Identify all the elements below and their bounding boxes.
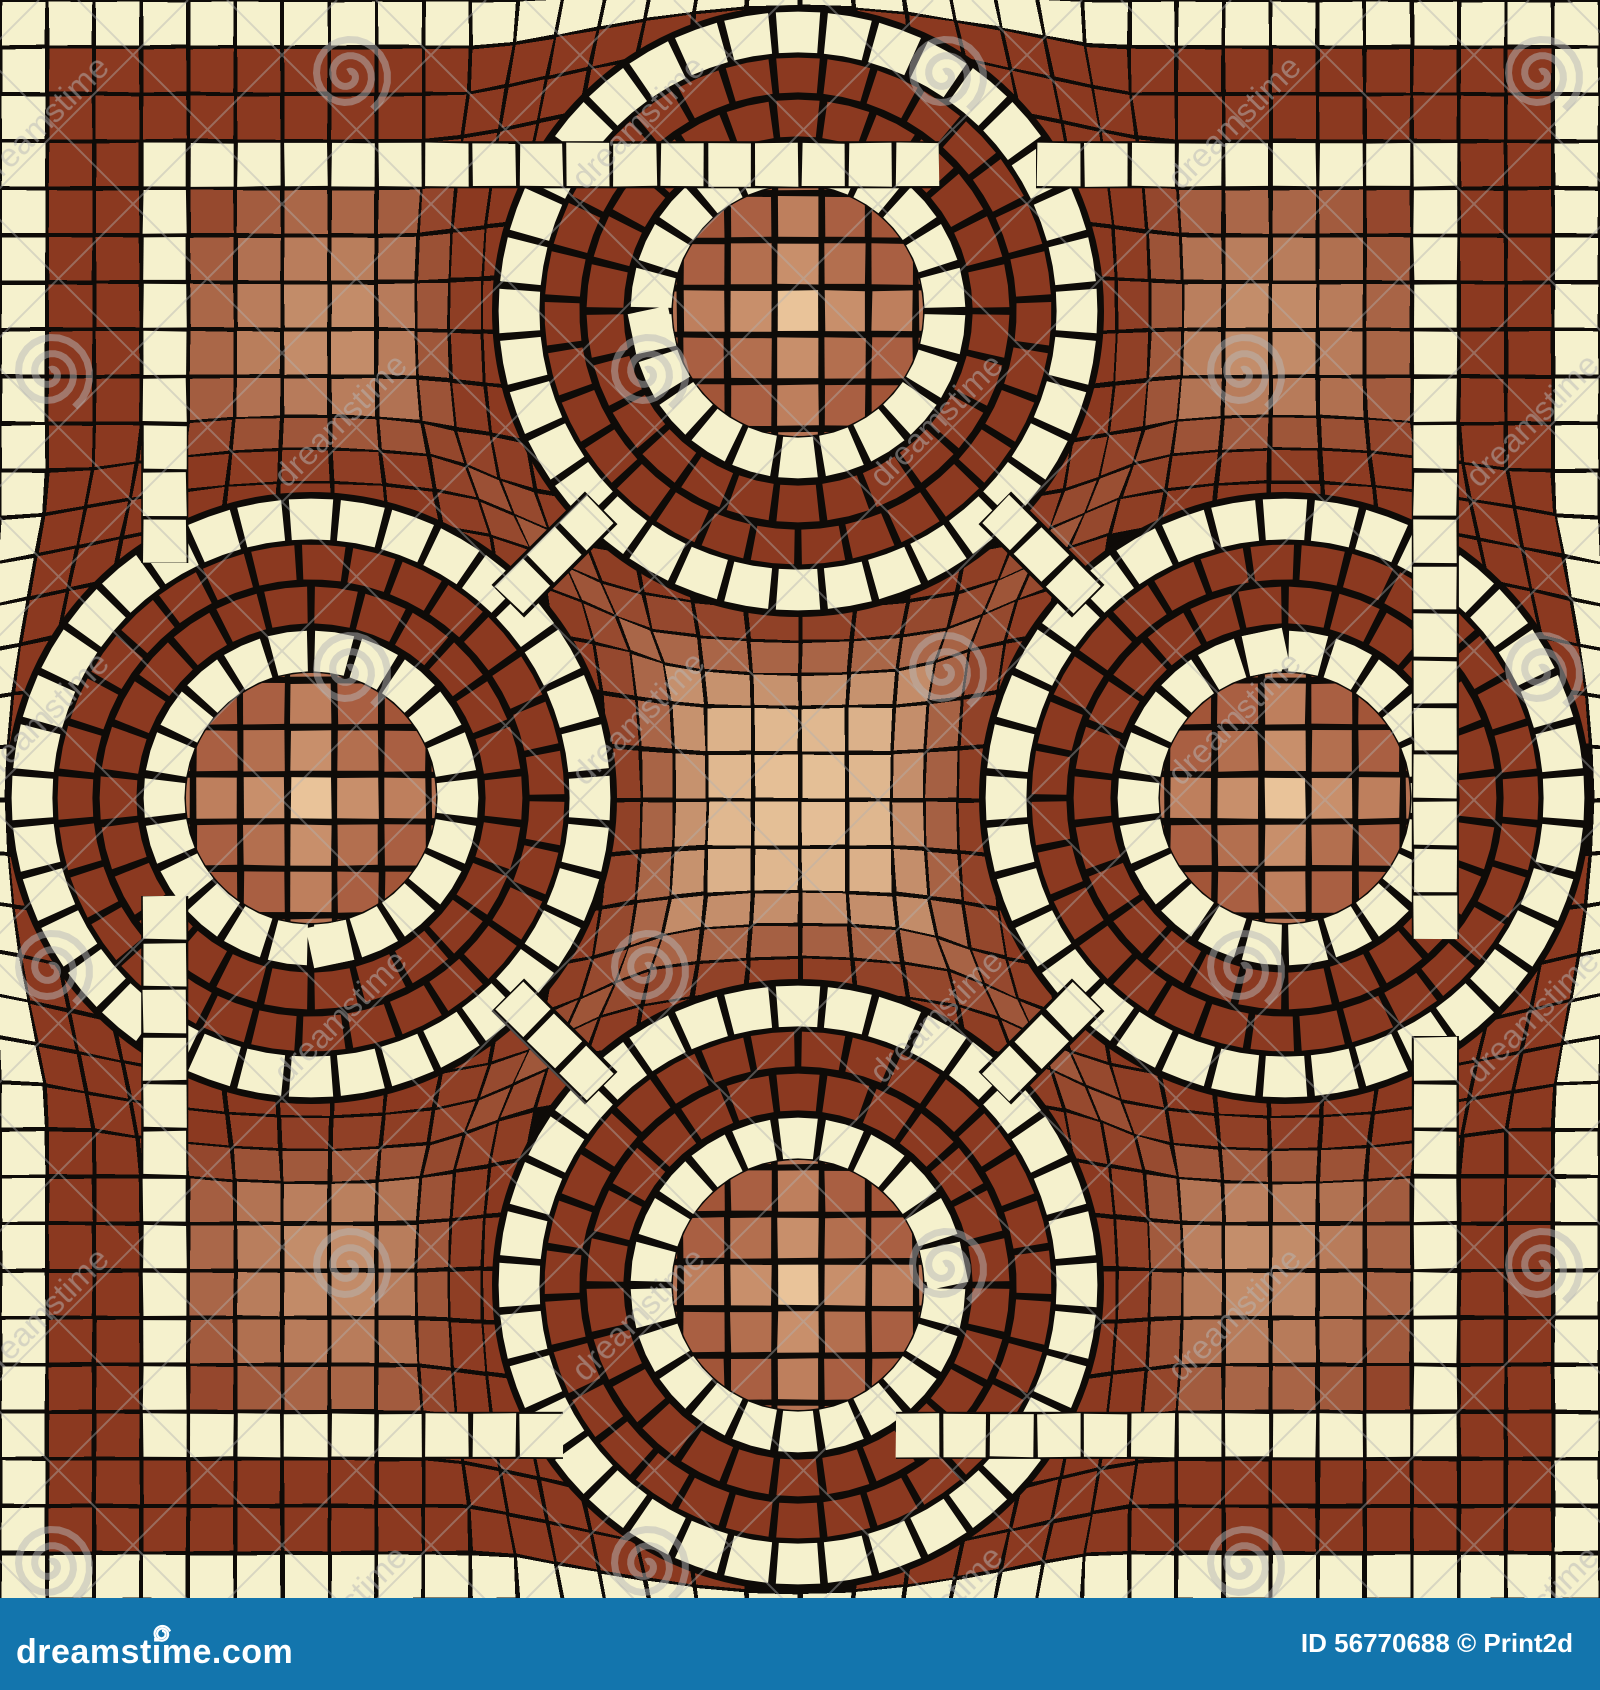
svg-text:dreamstime.com: dreamstime.com bbox=[16, 1633, 293, 1671]
svg-text:ID 56770688 © Print2d: ID 56770688 © Print2d bbox=[1301, 1628, 1573, 1658]
